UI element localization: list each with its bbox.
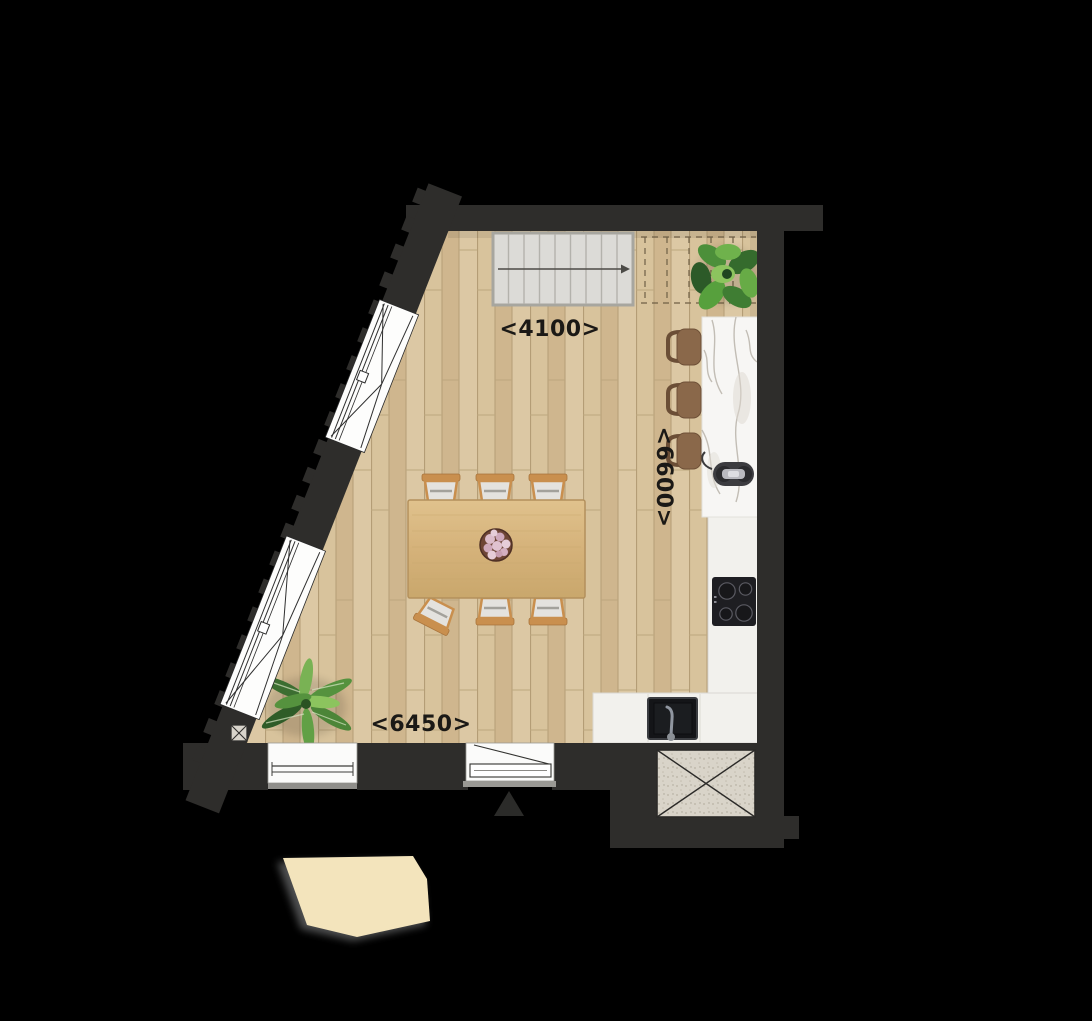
- wall-step-right: [784, 816, 799, 839]
- burner: [739, 583, 751, 595]
- kitchen-island: [702, 317, 758, 517]
- wall-bottom-mid: [357, 743, 468, 790]
- dimension-label-right: <6600>: [651, 426, 676, 527]
- bottom-window-glass: [268, 743, 357, 783]
- dining-table: [408, 500, 585, 598]
- dining-chair: [529, 474, 567, 501]
- dimension-label-bottom: <6450>: [370, 712, 471, 737]
- shaft: [657, 750, 755, 817]
- dining-chair: [476, 474, 514, 501]
- cooktop-control: [714, 601, 717, 603]
- staircase: [493, 233, 633, 305]
- wall-bottom-right: [552, 743, 610, 790]
- bottom-window-sill: [268, 783, 357, 789]
- dining-chair: [422, 474, 460, 501]
- bottom-window: [268, 743, 357, 789]
- floor-plan-page: <4100> <6600> <6450>: [0, 0, 1092, 1021]
- dimension-label-top: <4100>: [499, 317, 600, 342]
- door-threshold: [463, 781, 556, 787]
- floor-plan-canvas: <4100> <6600> <6450>: [0, 0, 1092, 1021]
- dining-chair: [476, 598, 514, 625]
- column-marker: [231, 725, 247, 741]
- entry-door: [463, 743, 556, 787]
- marble-shade: [733, 372, 751, 424]
- sink-icon: [648, 698, 697, 741]
- flower-vase: [480, 529, 512, 561]
- sink-faucet-base: [667, 733, 675, 741]
- burner: [736, 605, 752, 621]
- cooktop-control: [714, 596, 717, 598]
- burner: [720, 608, 732, 620]
- dining-chair: [529, 598, 567, 625]
- cooktop-icon: [712, 577, 756, 626]
- burner: [719, 583, 735, 599]
